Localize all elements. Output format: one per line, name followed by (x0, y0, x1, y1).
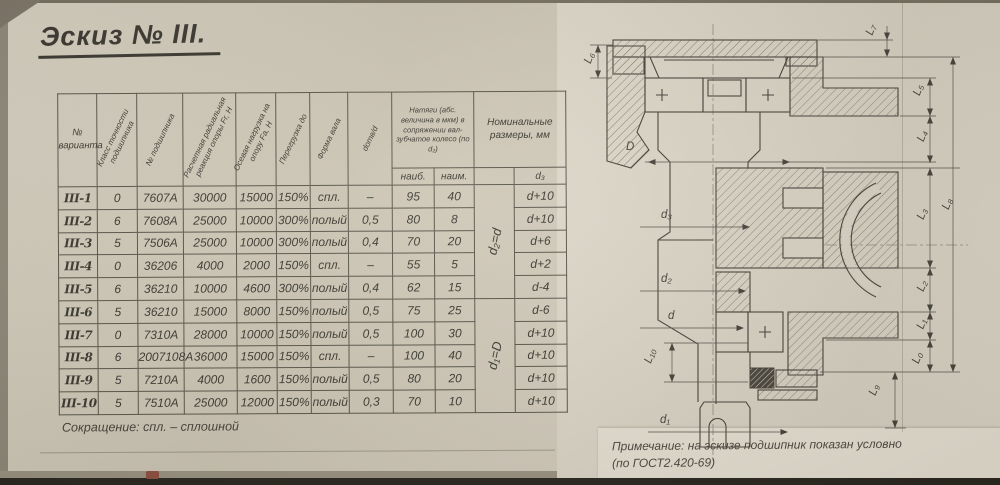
drawing-note: Примечание: на эскизе подшипник показан … (612, 436, 902, 473)
dim-label-d: d (668, 310, 674, 322)
photo-of-sketch: Эскиз № III. № варианта Класс точности п… (0, 0, 1000, 485)
seal (750, 368, 774, 388)
dim-label-D: D (626, 141, 634, 153)
note-line-1: Примечание: на эскизе подшипник показан … (612, 436, 902, 456)
bearing-assembly-drawing (0, 0, 1000, 485)
dim-label-d1: d₁ (660, 414, 670, 426)
section-geometry (607, 40, 898, 447)
bearing-center-marks (656, 89, 774, 101)
note-line-2: (по ГОСТ2.420-69) (612, 453, 902, 473)
dim-label-d2: d₂ (661, 273, 672, 285)
dim-label-d3: d₃ (661, 209, 672, 221)
